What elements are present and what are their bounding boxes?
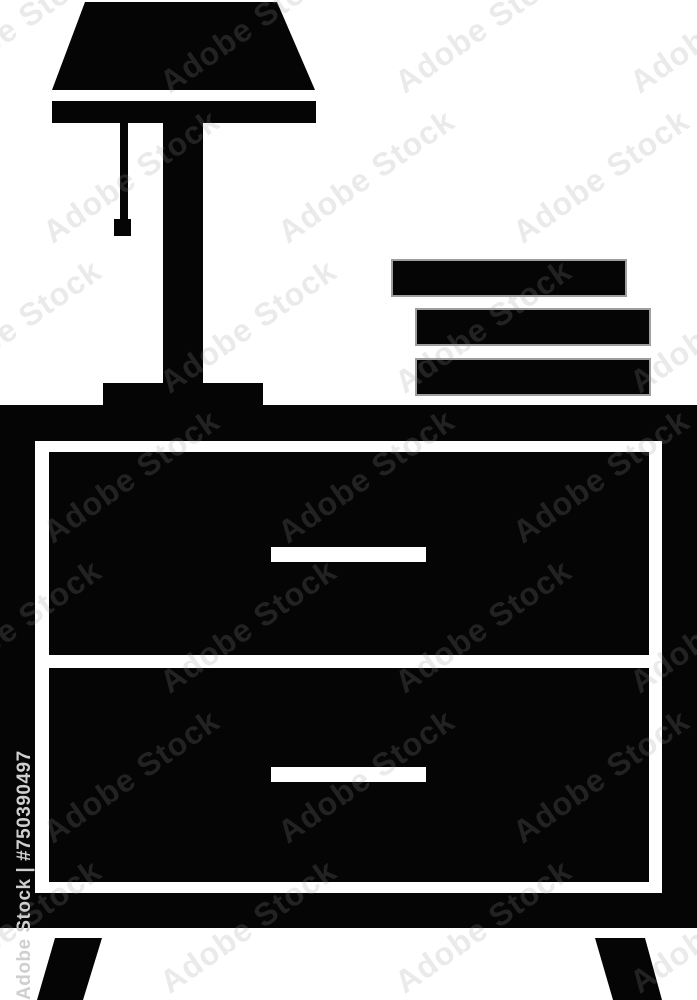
watermark-text: Adobe Stock bbox=[623, 0, 697, 101]
watermark-text: Adobe Stock bbox=[388, 0, 578, 101]
lamp-shade bbox=[52, 2, 315, 90]
lamp-shade-rim bbox=[52, 101, 316, 123]
lamp-stem bbox=[163, 123, 203, 383]
watermark-text: Adobe Stock bbox=[271, 102, 461, 251]
nightstand-right-leg bbox=[595, 938, 662, 1000]
lamp-base bbox=[103, 383, 263, 406]
lamp-pull-knob bbox=[114, 219, 131, 236]
watermark-text: Adobe Stock bbox=[506, 102, 696, 251]
drawer-bottom-handle bbox=[271, 767, 426, 782]
drawer-top-handle bbox=[271, 547, 426, 562]
lamp-pull-chain bbox=[120, 123, 128, 220]
nightstand-left-leg bbox=[37, 938, 102, 1000]
watermark-id-text: Adobe Stock | #750390497 bbox=[14, 750, 36, 1000]
watermark-text: Adobe Stock bbox=[0, 252, 109, 401]
book-bottom-icon bbox=[415, 358, 651, 396]
book-top-icon bbox=[391, 259, 627, 297]
stock-image-canvas: Adobe StockAdobe StockAdobe StockAdobe S… bbox=[0, 0, 697, 1000]
book-middle-icon bbox=[415, 308, 651, 346]
